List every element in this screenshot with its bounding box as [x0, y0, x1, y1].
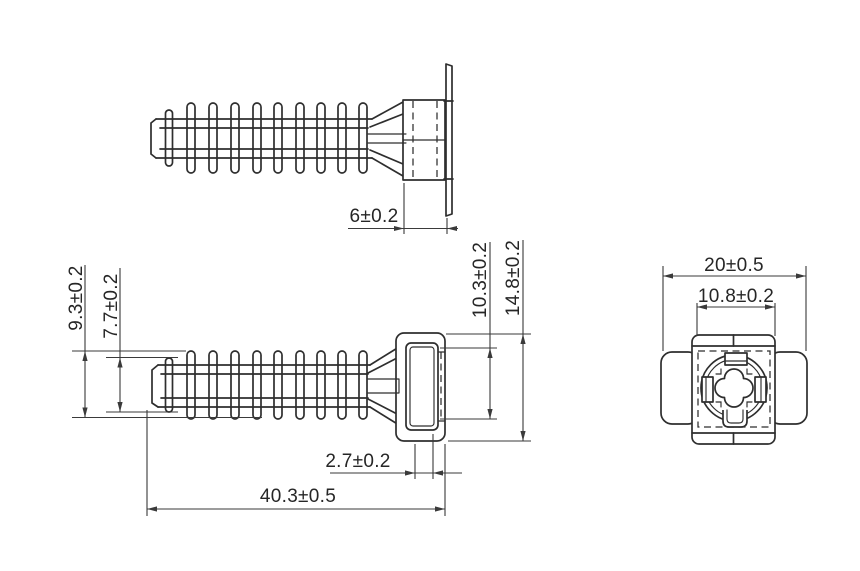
technical-drawing: 6±0.2: [0, 0, 860, 571]
top-view-head: [368, 64, 453, 216]
dim-overall-width-text: 20±0.5: [704, 255, 764, 276]
dim-slot-opening-height: 10.3±0.2: [440, 242, 497, 419]
dim-overall-length-text: 40.3±0.5: [260, 486, 336, 507]
dim-large-fin-diameter-text: 9.3±0.2: [66, 265, 87, 330]
dim-head-height-text: 14.8±0.2: [503, 240, 524, 316]
dim-head-depth-text: 6±0.2: [350, 206, 399, 227]
dim-slot-depth-text: 2.7±0.2: [325, 451, 390, 472]
top-view-flange-wing: [446, 64, 452, 216]
front-view-head: [368, 333, 445, 441]
top-view: 6±0.2: [151, 64, 458, 234]
dim-head-depth: 6±0.2: [348, 183, 458, 234]
front-view-fins: [166, 351, 368, 419]
dim-body-width: 10.8±0.2: [697, 286, 775, 336]
dim-slot-opening-height-text: 10.3±0.2: [470, 242, 491, 318]
drawing-sheet: 6±0.2: [0, 0, 860, 571]
top-view-fins: [166, 103, 368, 173]
dim-slot-depth: 2.7±0.2: [325, 434, 462, 479]
front-view: 9.3±0.2 7.7±0.2 10.3±0.2 14.8±0.2: [66, 240, 531, 516]
end-view: 20±0.5 10.8±0.2: [661, 255, 807, 444]
dim-small-fin-diameter-text: 7.7±0.2: [101, 273, 122, 338]
dim-body-width-text: 10.8±0.2: [698, 286, 774, 307]
